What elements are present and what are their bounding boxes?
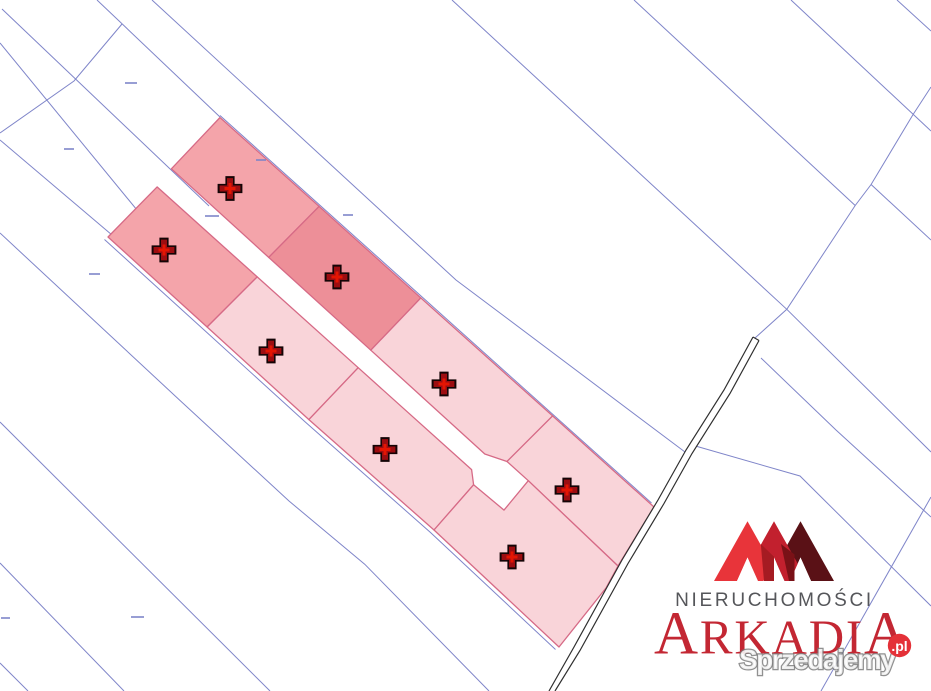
svg-text:.pl: .pl — [891, 638, 907, 654]
svg-text:NIERUCHOMOŚCI: NIERUCHOMOŚCI — [675, 589, 874, 611]
svg-text:Sprzedajemy: Sprzedajemy — [739, 644, 896, 675]
